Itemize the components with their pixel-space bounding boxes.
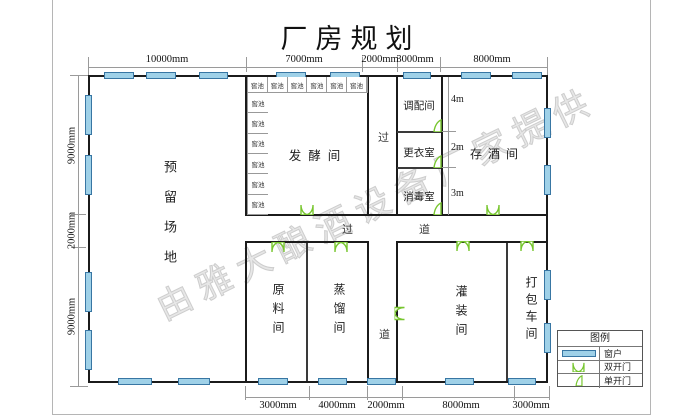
- single-door-icon: [558, 374, 600, 388]
- room-label-blending: 调配间: [396, 98, 442, 113]
- pit-cell: 窖池: [288, 77, 308, 93]
- dim-label: 3000mm: [501, 400, 561, 411]
- legend-label: 单开门: [600, 374, 642, 388]
- double-door-icon: [395, 307, 406, 321]
- single-door-icon: [433, 155, 442, 168]
- window: [544, 165, 551, 195]
- dim-tick: [245, 386, 246, 400]
- double-door-icon: [486, 204, 500, 215]
- single-door-icon: [433, 119, 442, 132]
- room-label-reserved: 预留场地: [160, 158, 179, 282]
- pit-cell-column: 窖池 窖池 窖池 窖池 窖池 窖池: [247, 93, 268, 215]
- double-door-icon: [300, 204, 314, 215]
- legend-row-double-door: 双开门: [558, 361, 642, 375]
- corridor-label: 过: [342, 221, 353, 237]
- dim-tick: [514, 386, 515, 400]
- dim-label: 3000mm: [394, 54, 436, 65]
- corridor-label: 道: [379, 326, 390, 342]
- pit-cell: 窖池: [247, 113, 268, 133]
- window: [146, 72, 176, 79]
- window: [104, 72, 134, 79]
- wall-topblock-bottom: [245, 214, 548, 216]
- window: [85, 95, 92, 135]
- pit-cell: 窖池: [307, 77, 327, 93]
- corridor-label: 道: [419, 221, 430, 237]
- double-door-icon: [271, 242, 285, 253]
- dim-tick: [549, 386, 550, 400]
- dim-label: 3000mm: [248, 400, 308, 411]
- dim-line-inner: [448, 77, 449, 215]
- pit-cell: 窖池: [247, 174, 268, 194]
- dim-tick: [88, 57, 89, 75]
- pit-cell: 窖池: [247, 154, 268, 174]
- legend-title: 图例: [558, 331, 642, 347]
- room-label-packing: 打包车间: [523, 275, 540, 345]
- pit-cell: 窖池: [347, 77, 367, 93]
- wall-rawmaterial-distillation-divider: [306, 243, 308, 381]
- dim-tick: [309, 386, 310, 400]
- dim-label: 9000mm: [67, 292, 78, 342]
- pit-cell-row: 窖池 窖池 窖池 窖池 窖池 窖池: [247, 77, 368, 93]
- window: [199, 72, 228, 79]
- window: [403, 72, 431, 79]
- dim-label: 7000mm: [264, 54, 344, 65]
- dim-tick: [246, 57, 247, 72]
- double-door-icon: [334, 242, 348, 253]
- window: [85, 330, 92, 370]
- room-label-distillation: 蒸馏间: [331, 283, 348, 337]
- dim-line-top: [88, 67, 548, 68]
- window-icon: [558, 347, 600, 360]
- window: [544, 270, 551, 300]
- dim-label: 10000mm: [127, 54, 207, 65]
- room-label-filling: 灌装间: [453, 285, 470, 339]
- window: [178, 378, 210, 385]
- dim-tick: [70, 386, 88, 387]
- page-title: 厂房规划: [52, 17, 649, 56]
- dim-tick: [442, 131, 456, 132]
- floor-plan: 厂房规划 由雅大酿酒设备厂家提供 10000mm 7000mm 2000mm 3…: [0, 0, 700, 420]
- dim-label: 2m: [451, 142, 464, 153]
- dim-tick: [442, 167, 456, 168]
- wall-rawmaterial-left: [245, 241, 247, 381]
- legend-label: 双开门: [600, 361, 642, 374]
- dim-label: 3m: [451, 188, 464, 199]
- window: [445, 378, 474, 385]
- legend-row-window: 窗户: [558, 347, 642, 361]
- legend: 图例 窗户 双开门 单开门: [557, 330, 643, 387]
- double-door-icon: [520, 241, 534, 252]
- single-door-icon: [433, 202, 442, 215]
- wall-filling-packing-divider: [506, 243, 508, 381]
- dim-tick: [367, 386, 368, 400]
- window: [367, 378, 396, 385]
- dim-label: 8000mm: [462, 54, 522, 65]
- legend-row-single-door: 单开门: [558, 374, 642, 388]
- dim-tick: [70, 75, 88, 76]
- dim-tick: [547, 57, 548, 75]
- wall-distillation-right: [367, 241, 369, 381]
- window: [118, 378, 152, 385]
- window: [461, 72, 491, 79]
- window: [258, 378, 288, 385]
- dim-tick: [440, 57, 441, 72]
- dim-line-bottom: [245, 397, 550, 398]
- dim-label: 8000mm: [431, 400, 491, 411]
- pit-cell: 窖池: [247, 77, 268, 93]
- window: [508, 378, 536, 385]
- window: [512, 72, 542, 79]
- dim-line-left: [78, 75, 79, 387]
- legend-label: 窗户: [600, 347, 642, 360]
- dim-label: 4m: [451, 94, 464, 105]
- corridor-label: 过: [378, 129, 389, 145]
- pit-cell: 窖池: [327, 77, 347, 93]
- pit-cell: 窖池: [247, 134, 268, 154]
- pit-cell: 窖池: [247, 93, 268, 113]
- dim-tick: [402, 386, 403, 400]
- window: [544, 108, 551, 138]
- pit-cell: 窖池: [268, 77, 288, 93]
- window: [85, 155, 92, 195]
- pit-cell: 窖池: [247, 195, 268, 215]
- dim-label: 2000mm: [67, 206, 78, 256]
- room-label-raw-material: 原料间: [270, 283, 287, 337]
- dim-label: 9000mm: [67, 121, 78, 171]
- room-label-fermentation: 发酵间: [266, 145, 370, 164]
- double-door-icon: [558, 361, 600, 374]
- window: [544, 323, 551, 353]
- window: [85, 272, 92, 312]
- window: [318, 378, 347, 385]
- double-door-icon: [456, 241, 470, 252]
- dim-label: 2000mm: [356, 400, 416, 411]
